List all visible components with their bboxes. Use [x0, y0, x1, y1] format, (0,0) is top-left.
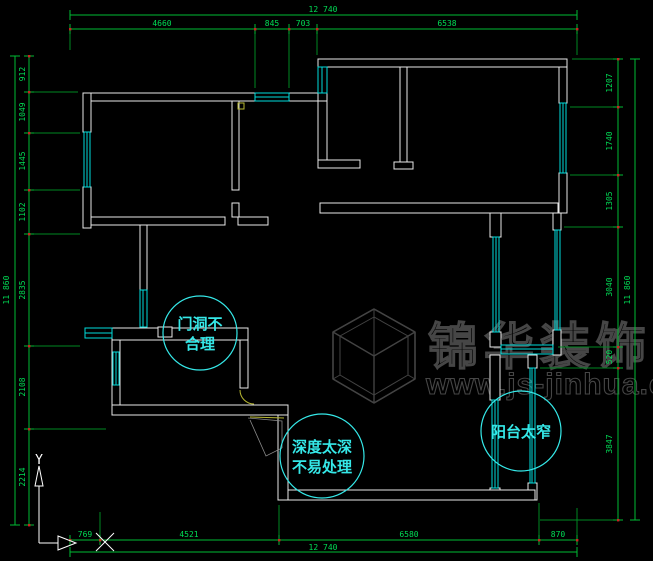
dim-label: 1049	[18, 102, 27, 121]
window-segment	[555, 230, 560, 330]
dim-label: 1740	[605, 131, 614, 150]
dim-label: 2214	[18, 467, 27, 486]
dim-label: 1305	[605, 191, 614, 210]
dim-label: 2835	[18, 280, 27, 299]
annotation-balcony: 阳台太窄	[481, 391, 561, 471]
door-arc	[240, 390, 254, 404]
dim-label: 520	[605, 350, 614, 365]
wall-segment	[490, 213, 501, 237]
wall-segment	[240, 340, 248, 388]
wall-segment	[528, 355, 537, 368]
annotation-text: 门洞不	[177, 315, 222, 333]
dim-label: 845	[265, 19, 280, 28]
wall-segment	[553, 213, 561, 230]
window-segment	[84, 132, 90, 187]
annotation-text: 不易处理	[292, 458, 352, 476]
dim-label: 12 740	[309, 543, 338, 552]
x-axis-label	[96, 533, 114, 551]
wall-segment	[232, 101, 239, 190]
wall-segment	[318, 59, 567, 67]
dim-label: 769	[78, 530, 93, 539]
wall-segment	[112, 405, 288, 415]
dim-label: 6580	[399, 530, 418, 539]
annotation-depth: 深度太深 不易处理	[280, 414, 364, 498]
ucs-axis-icon: Y	[35, 453, 114, 551]
window-segment	[318, 67, 327, 93]
dim-label: 3040	[605, 277, 614, 296]
door-opening-symbol	[158, 327, 172, 337]
wall-segment	[490, 332, 501, 347]
wall-segment	[559, 67, 567, 103]
y-axis-label: Y	[35, 453, 43, 468]
wall-segment	[400, 67, 407, 162]
dim-label: 3847	[605, 434, 614, 453]
wall-segment	[83, 187, 91, 228]
dim-label: 703	[296, 19, 311, 28]
dim-label: 1207	[605, 73, 614, 92]
dim-label: 870	[551, 530, 566, 539]
dim-label: 11 860	[2, 275, 11, 304]
wall-segment	[318, 101, 327, 160]
wall-segment	[490, 355, 500, 400]
dim-label: 1445	[18, 151, 27, 170]
wall-segment	[238, 217, 268, 225]
dim-label: 4660	[152, 19, 171, 28]
wall-segment	[318, 160, 360, 168]
wall-segment	[289, 93, 318, 101]
wall-segment	[320, 203, 558, 213]
annotation-text: 深度太深	[292, 438, 352, 456]
wall-segment	[232, 203, 239, 217]
dim-label: 912	[18, 67, 27, 82]
wall-segment	[91, 217, 225, 225]
y-axis-arrow	[35, 466, 43, 486]
window-segment	[255, 93, 289, 101]
dim-label: 12 740	[309, 5, 338, 14]
wall-segment	[83, 93, 255, 101]
annotation-text: 合理	[184, 335, 215, 353]
dim-label: 6538	[437, 19, 456, 28]
wall-segment	[553, 330, 561, 355]
dim-label: 1102	[18, 202, 27, 221]
wall-segment	[394, 162, 413, 169]
top-dimension-chain	[70, 10, 577, 88]
cube-logo-icon	[333, 309, 415, 403]
niche-leader	[248, 418, 282, 456]
window-segment	[560, 103, 566, 173]
dim-label: 4521	[179, 530, 198, 539]
x-axis-arrow	[58, 536, 76, 550]
window-segment	[140, 290, 147, 327]
dim-label: 2108	[18, 377, 27, 396]
floor-plan-svg: 锦华装饰 www.js-jinhua.com	[0, 0, 653, 561]
window-segment	[492, 400, 498, 488]
wall-segment	[318, 93, 327, 101]
wall-segment	[559, 173, 567, 213]
cad-drawing-area: 锦华装饰 www.js-jinhua.com	[0, 0, 653, 561]
dim-label: 11 860	[623, 275, 632, 304]
window-segment	[85, 328, 112, 338]
wall-segment	[83, 93, 91, 132]
annotation-text: 阳台太窄	[491, 423, 551, 441]
wall-segment	[140, 225, 147, 290]
window-segment	[493, 237, 499, 332]
watermark-url: www.js-jinhua.com	[425, 368, 653, 401]
